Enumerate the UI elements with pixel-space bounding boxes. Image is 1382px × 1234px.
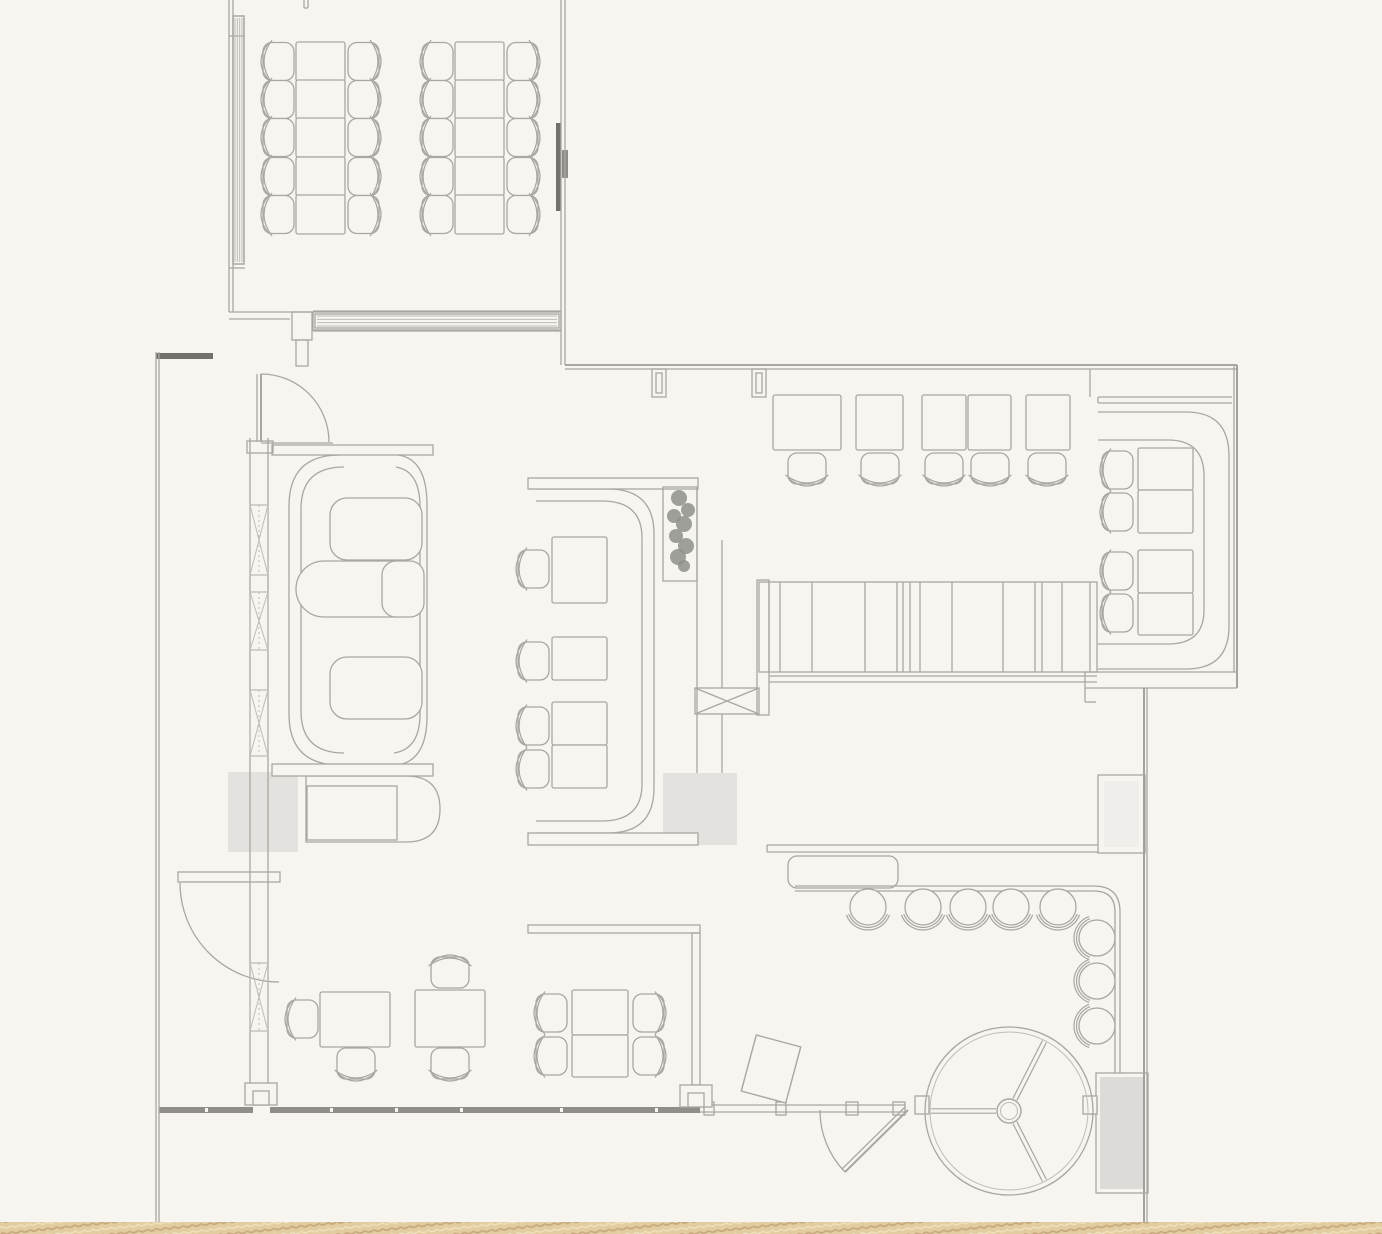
chair	[429, 955, 472, 988]
center-banquette	[516, 537, 607, 791]
chair	[507, 155, 540, 198]
chair	[1100, 550, 1133, 593]
chair	[348, 116, 381, 159]
chair	[420, 193, 453, 236]
chair	[507, 116, 540, 159]
chair	[516, 640, 549, 683]
chair	[786, 453, 829, 486]
chair	[1100, 491, 1133, 534]
host-stand	[741, 1035, 800, 1103]
chair	[348, 155, 381, 198]
chair	[507, 78, 540, 121]
plant	[663, 487, 697, 581]
chair	[923, 453, 966, 486]
chair	[969, 453, 1012, 486]
chair	[348, 40, 381, 83]
chair	[516, 548, 549, 591]
chair	[507, 193, 540, 236]
floor-fills	[0, 123, 1382, 1234]
chair	[420, 78, 453, 121]
chair	[348, 193, 381, 236]
bar-seating	[773, 395, 1070, 486]
chair	[429, 1048, 472, 1081]
chair	[516, 748, 549, 791]
floor-tables	[285, 955, 666, 1081]
chair	[516, 705, 549, 748]
stool	[1074, 1004, 1115, 1047]
stool	[1036, 889, 1079, 930]
floor-plan-page	[0, 0, 1382, 1234]
floor-plan-drawing	[0, 0, 1382, 1234]
chair	[534, 992, 567, 1035]
chair	[420, 40, 453, 83]
chair	[420, 155, 453, 198]
private-dining-room	[261, 40, 540, 236]
chair	[1100, 449, 1133, 492]
stool	[901, 889, 944, 930]
chair	[348, 78, 381, 121]
booth-seating	[272, 412, 1229, 845]
chair	[1100, 592, 1133, 635]
chair	[285, 998, 318, 1041]
stool	[989, 889, 1032, 930]
chair	[859, 453, 902, 486]
chair	[534, 1035, 567, 1078]
chair	[261, 116, 294, 159]
stool	[1074, 916, 1115, 959]
chair	[261, 193, 294, 236]
stool	[846, 889, 889, 930]
stool	[946, 889, 989, 930]
chair	[335, 1048, 378, 1081]
revolving-door	[925, 1027, 1093, 1195]
chair	[1026, 453, 1069, 486]
chair	[633, 992, 666, 1035]
counter-stools	[846, 889, 1115, 1048]
chair	[261, 155, 294, 198]
chair	[633, 1035, 666, 1078]
stool	[1074, 959, 1115, 1002]
chair	[261, 40, 294, 83]
right-booth	[1100, 448, 1193, 635]
chair	[507, 40, 540, 83]
chair	[261, 78, 294, 121]
chair	[420, 116, 453, 159]
